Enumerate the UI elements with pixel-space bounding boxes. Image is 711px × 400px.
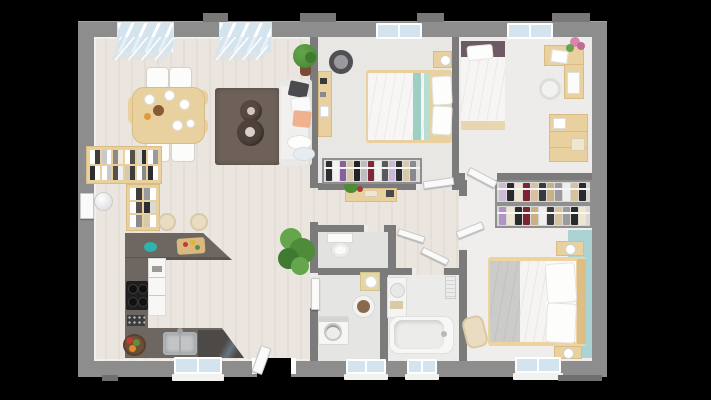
food-item (183, 242, 188, 247)
window-pane (378, 25, 398, 37)
living-bay-window-2-apron (213, 37, 271, 60)
bathroom-window-sill (405, 374, 439, 380)
window-pane (531, 25, 551, 37)
parapet-tab (552, 13, 590, 22)
basin-towel (357, 300, 370, 313)
ball-floor-lamp (94, 192, 113, 211)
foundation-chunk (102, 375, 118, 381)
oven-column (148, 258, 166, 316)
teal-bowl (144, 242, 157, 252)
bathtub-inner (394, 320, 444, 349)
desk-item (320, 92, 326, 97)
bedroom2-window (507, 23, 553, 39)
bedroom3-window (515, 357, 561, 373)
desk-item-white (567, 72, 580, 94)
window-pane (176, 359, 197, 372)
window-pane (409, 361, 421, 372)
wall-wc-south (318, 268, 396, 275)
dresser-item (571, 138, 585, 151)
bedroom1-teal-runner (424, 73, 430, 140)
burner (128, 297, 138, 307)
bedroom3-clothes-rack (495, 180, 592, 228)
bedroom2-pillow (466, 44, 493, 61)
wall-bedroom2-south-stub (459, 173, 465, 180)
bedroom3-lamp (563, 348, 574, 359)
kitchen-control-panel (127, 315, 145, 326)
plate (179, 99, 190, 110)
plate (172, 120, 183, 131)
utility-door (311, 278, 320, 310)
sofa-cushion (293, 147, 315, 161)
terrace-door-jamb (291, 358, 296, 374)
bedroom3-pillow (545, 262, 578, 304)
potted-tree-leaf (305, 52, 316, 63)
wall-bath-north-a (396, 268, 412, 275)
vegetable (129, 345, 136, 352)
burner (138, 297, 148, 307)
dresser-item (553, 118, 566, 129)
window-pane (400, 25, 420, 37)
food-item (190, 240, 195, 245)
bathtub-faucet (441, 331, 447, 337)
wall-hall-bedroom3-stub (459, 180, 467, 196)
wall-wc-north-b (384, 225, 396, 232)
dining-chair (169, 67, 192, 89)
console-item-dark (386, 190, 394, 197)
window-pane (348, 361, 365, 372)
bedroom2-mattress (461, 57, 505, 122)
cube-bookshelf-horizontal (86, 146, 162, 184)
sink-divider (179, 333, 181, 354)
wall-bedroom2-south (497, 173, 592, 180)
food-item (195, 245, 200, 250)
living-bay-window-1-apron (112, 37, 174, 60)
bedroom1-pillow (431, 75, 452, 105)
bedroom1-lamp (440, 55, 451, 66)
window-pane (423, 361, 435, 372)
utility-window-sill (344, 374, 388, 380)
toilet-bowl (331, 242, 350, 258)
desk-paper (550, 49, 569, 64)
dining-chair (146, 67, 169, 89)
utility-window (346, 359, 386, 374)
window-pane (199, 359, 220, 372)
console-magazines (364, 190, 378, 197)
window-pane (539, 359, 559, 371)
wooden-bowl (153, 105, 164, 116)
washer-drum (324, 323, 342, 341)
vegetable (126, 337, 133, 344)
bedroom2-chair (539, 78, 561, 100)
bedroom3-lamp (565, 244, 576, 255)
bedroom3-window-sill (513, 373, 563, 380)
radiator (445, 276, 456, 299)
bedroom1-wardrobe (322, 158, 422, 184)
faucet (177, 328, 183, 334)
jamb (416, 183, 420, 190)
entry-door-left (80, 193, 94, 219)
bedroom3-pillow (545, 302, 577, 344)
wardrobe-rod (324, 167, 420, 169)
bedroom1-window (376, 23, 422, 39)
bedroom1-pillow (431, 105, 452, 135)
burner (138, 284, 148, 294)
bedroom3-gray-blanket (490, 261, 520, 342)
bar-stool (190, 213, 208, 231)
mini-vanity-basin (365, 276, 377, 288)
bedroom2-bed-foot (461, 121, 505, 130)
plate (164, 90, 175, 101)
foundation-chunk (558, 375, 602, 381)
flower-leaves (566, 44, 574, 52)
console-item-red (357, 186, 363, 192)
parapet-tab (203, 13, 228, 22)
desk-item (320, 78, 327, 84)
cube-bookshelf-vertical (126, 184, 160, 231)
desk-item (320, 106, 329, 117)
vanity-basin (390, 283, 405, 298)
kitchen-window-sill (172, 374, 224, 381)
parapet-tab (300, 13, 336, 22)
jamb (412, 268, 416, 275)
wall-bath-north-b (444, 268, 459, 275)
window-pane (517, 359, 537, 371)
parapet-tab (417, 13, 444, 22)
pouf-tray (245, 127, 255, 137)
washer-controls (319, 317, 348, 322)
wall-living-east-c (310, 308, 318, 361)
bedroom3-headboard (577, 259, 586, 344)
plate (144, 94, 155, 105)
jamb (459, 246, 467, 250)
jamb (364, 225, 368, 232)
bedroom3-duvet (520, 261, 546, 342)
jamb (459, 196, 467, 200)
window-pane (367, 361, 384, 372)
burner (128, 284, 138, 294)
wall-hall-bedroom3 (459, 250, 467, 361)
wall-wc-north-a (318, 225, 368, 232)
floorplan-render (0, 0, 711, 400)
bathroom-window (407, 359, 437, 374)
vanity-towel (390, 301, 403, 309)
window-pane (509, 25, 529, 37)
kitchen-window (174, 357, 222, 374)
flower-vase (577, 42, 585, 50)
bedroom1-teal-runner (413, 73, 421, 140)
rack-rod (497, 188, 590, 190)
bedroom1-chair (329, 50, 353, 74)
jamb (310, 273, 318, 277)
hall-plant (291, 257, 309, 275)
fruit-bowl (144, 113, 151, 120)
plate (186, 119, 195, 128)
rack-rod (497, 212, 590, 214)
sofa-pillow-peach (292, 110, 312, 128)
bar-stool (158, 213, 176, 231)
pouf-tray (247, 107, 255, 115)
wall-bedroom1-bedroom2 (452, 37, 459, 183)
